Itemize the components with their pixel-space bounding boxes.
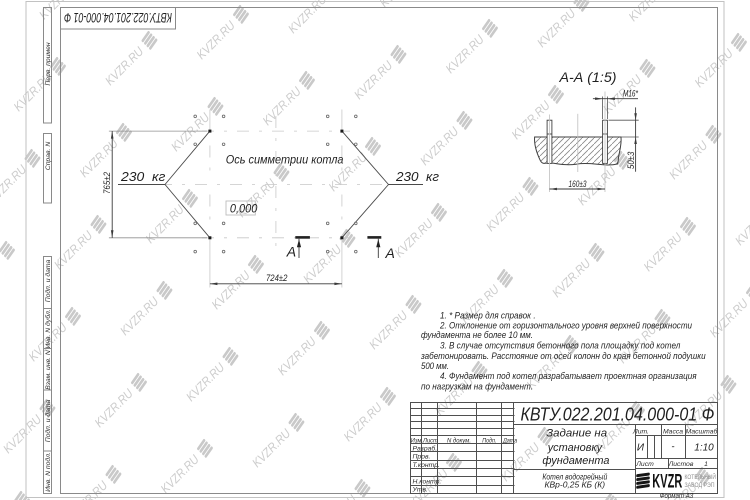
svg-text:Подп. и дата: Подп. и дата [44,400,52,443]
svg-text:по нагрузкам на фундамент.: по нагрузкам на фундамент. [421,381,533,392]
svg-text:Масса: Масса [663,429,683,436]
svg-text:ЗАВОД РЭП: ЗАВОД РЭП [685,483,715,489]
svg-text:KVZR: KVZR [652,472,682,493]
svg-text:230 кг: 230 кг [395,169,440,184]
svg-text:Масштаб: Масштаб [686,428,719,436]
svg-text:Лист: Лист [635,461,654,468]
svg-text:Справ. N: Справ. N [45,142,52,171]
svg-text:Инв. N дубл.: Инв. N дубл. [44,309,52,348]
svg-text:фундамента: фундамента [542,455,609,467]
svg-text:724±2: 724±2 [266,273,288,283]
svg-text:1: 1 [704,461,708,468]
svg-text:А: А [385,245,395,261]
svg-text:КВТУ.022.201.04.000-01 Ф: КВТУ.022.201.04.000-01 Ф [64,10,172,26]
svg-text:Формат А3: Формат А3 [660,491,694,500]
svg-text:Ось симметрии котла: Ось симметрии котла [226,152,344,166]
svg-text:Подп.: Подп. [482,436,496,444]
svg-text:230 кг: 230 кг [120,169,166,184]
svg-text:фундамента не более 10 мм.: фундамента не более 10 мм. [421,330,533,341]
svg-text:160±3: 160±3 [569,179,587,189]
svg-text:Утв.: Утв. [412,487,429,494]
svg-text:Изм.Лист: Изм.Лист [411,437,438,444]
svg-text:1:10: 1:10 [694,443,714,454]
svg-text:И: И [637,443,645,454]
svg-text:Задание на: Задание на [546,428,607,440]
svg-text:Пров.: Пров. [413,454,431,461]
svg-text:КОТЕЛЬНЫЙ: КОТЕЛЬНЫЙ [685,473,717,481]
svg-text:М16*: М16* [623,88,638,98]
svg-text:забетонировать. Расстояние от: забетонировать. Расстояние от осей колон… [420,351,706,362]
svg-text:А: А [286,244,296,260]
svg-text:установку: установку [547,442,604,454]
svg-text:Разраб.: Разраб. [413,444,438,452]
svg-text:Подп. и дата: Подп. и дата [44,260,52,303]
svg-text:КВТУ.022.201.04.000-01 Ф: КВТУ.022.201.04.000-01 Ф [521,404,715,425]
svg-text:-: - [671,442,674,453]
svg-text:765±2: 765±2 [102,172,112,194]
svg-text:Т.контр.: Т.контр. [413,462,441,469]
svg-text:Перв. примен: Перв. примен [45,42,52,86]
svg-text:Взам. инв. N: Взам. инв. N [45,350,52,390]
svg-text:0,000: 0,000 [230,203,258,215]
svg-text:Инв. N подл.: Инв. N подл. [44,452,52,492]
svg-text:КВр-0,25 КБ (К): КВр-0,25 КБ (К) [545,480,606,490]
svg-text:3. В случае отсутствия бетонно: 3. В случае отсутствия бетонного пола пл… [440,341,681,352]
svg-text:Лит.: Лит. [632,429,649,436]
svg-text:А-А (1:5): А-А (1:5) [558,69,616,85]
svg-text:Дата: Дата [502,437,517,444]
svg-text:N докум.: N докум. [447,436,471,444]
svg-text:Н.контр.: Н.контр. [413,478,442,485]
svg-text:50±3: 50±3 [626,152,636,169]
svg-text:Листов: Листов [668,461,694,468]
